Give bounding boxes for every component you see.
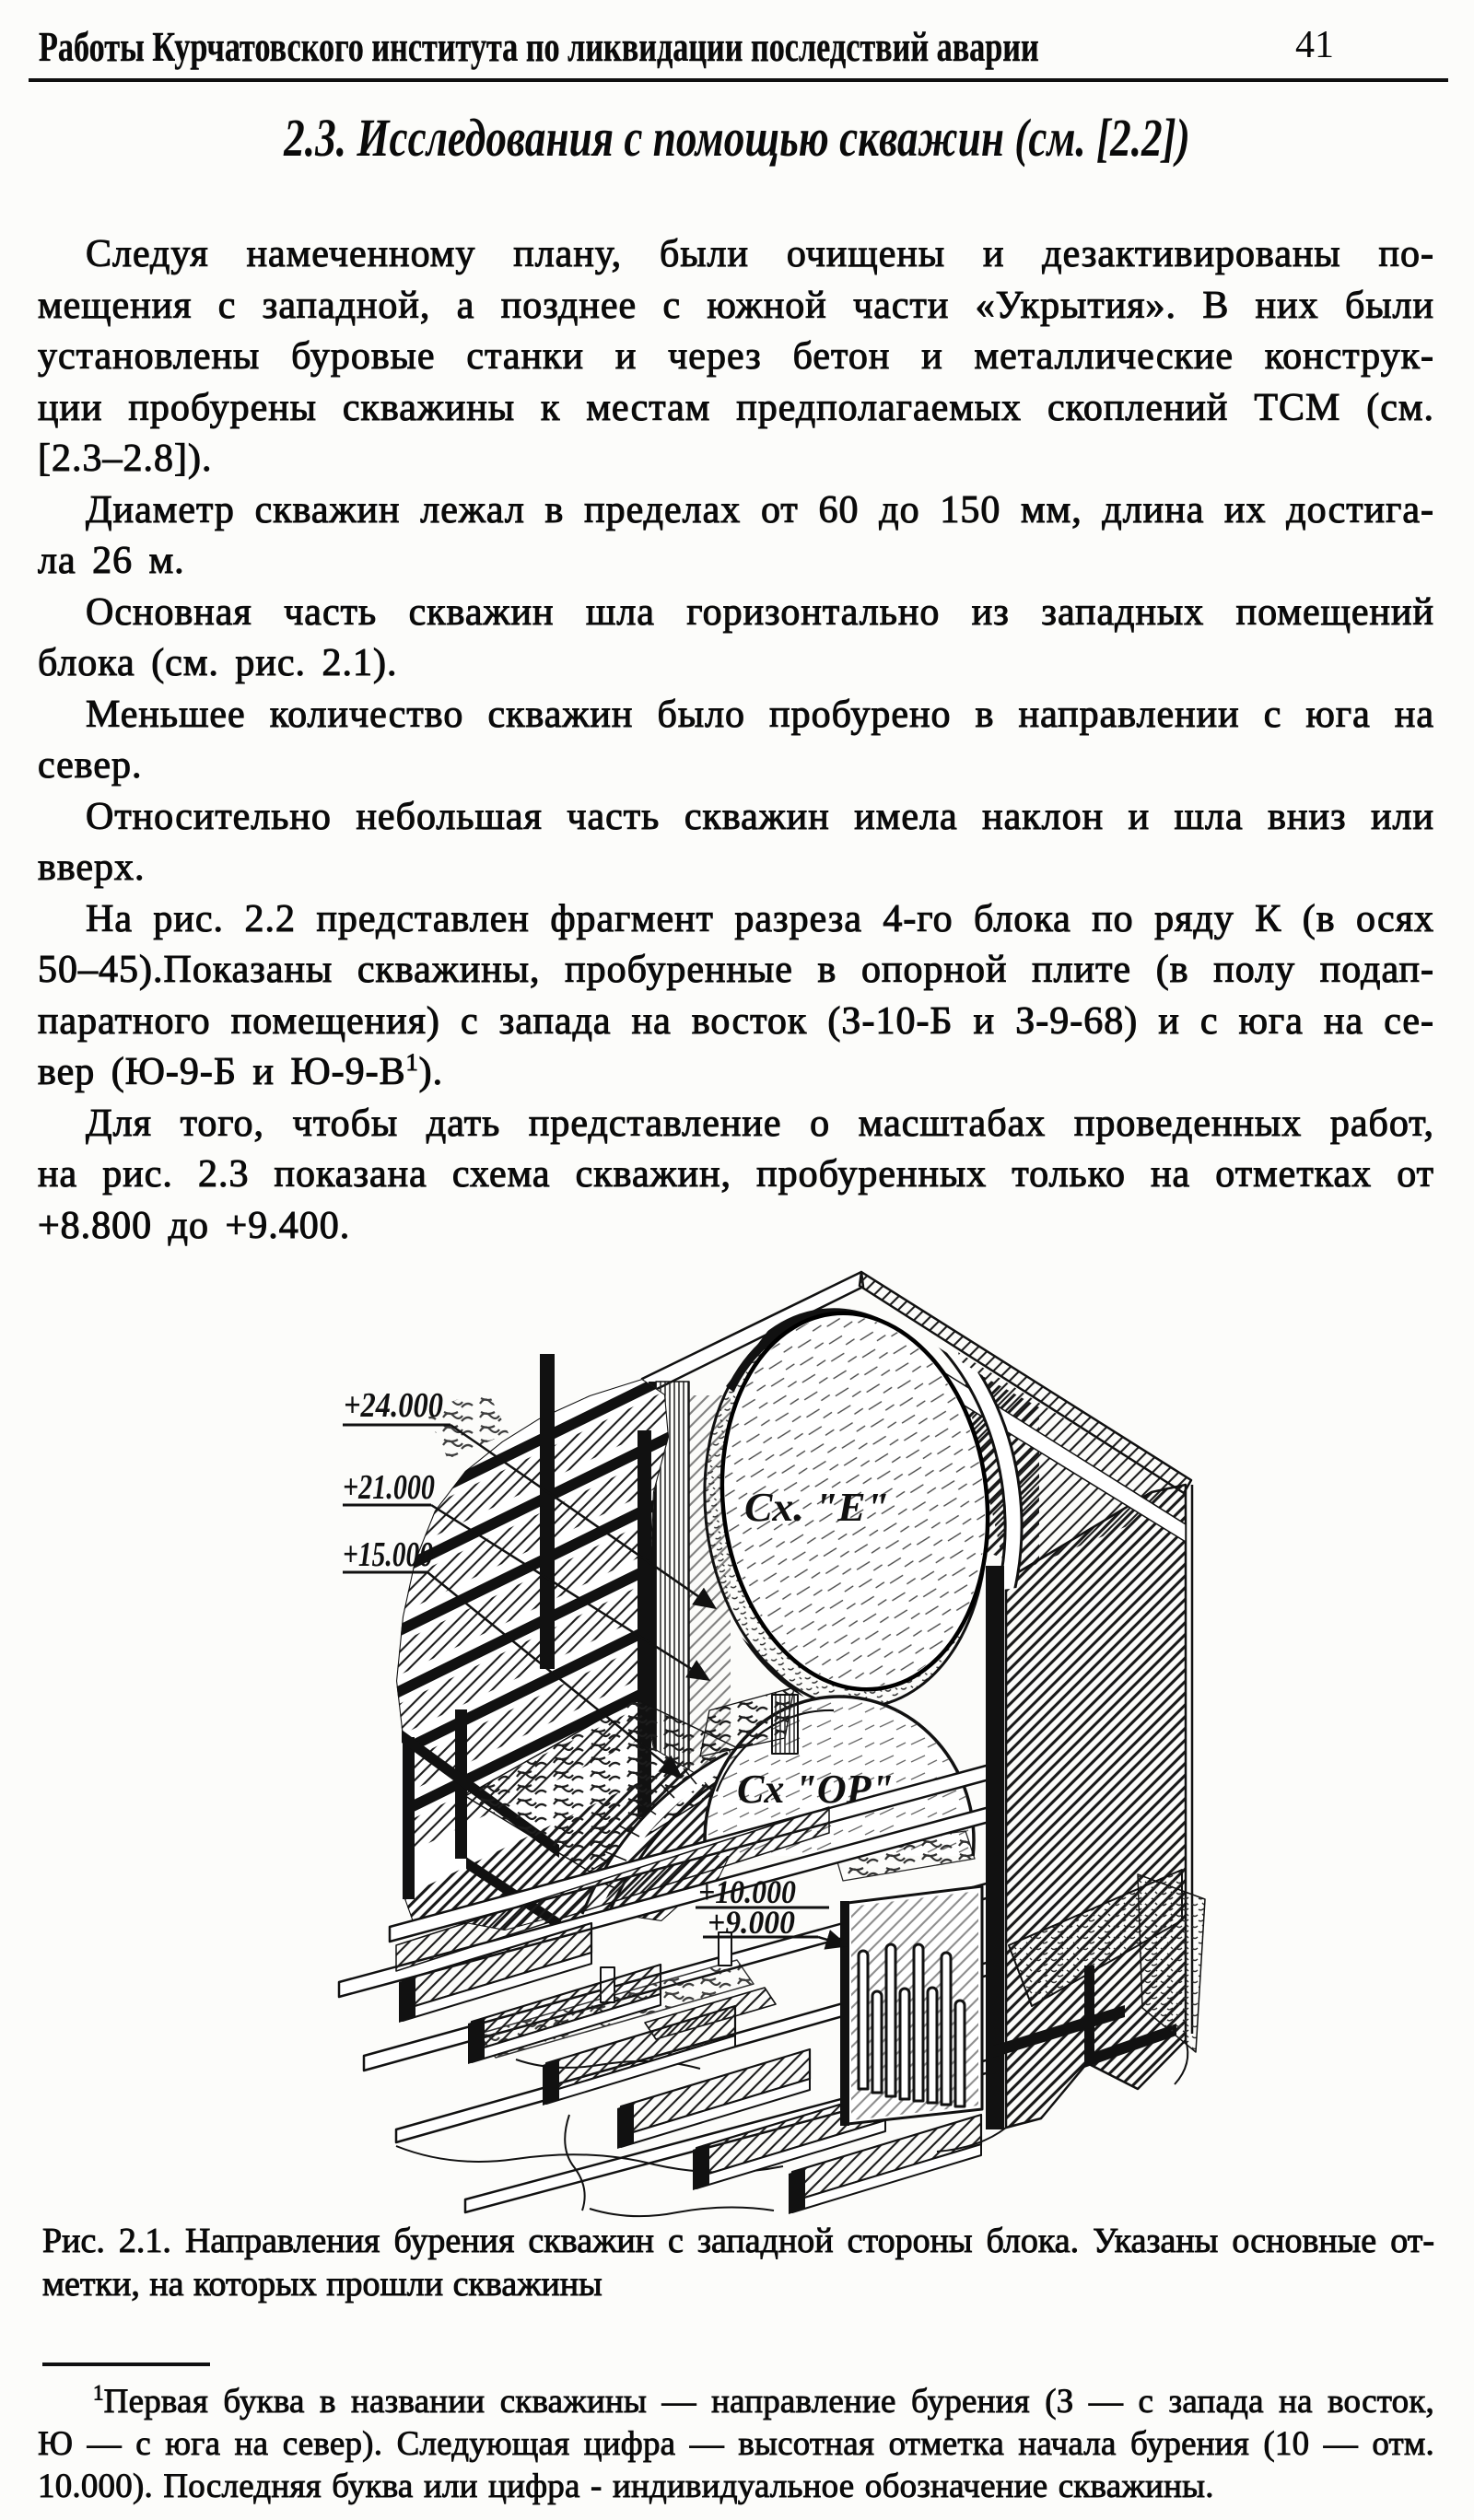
svg-text:+21.000: +21.000	[343, 1468, 435, 1507]
svg-text:+24.000: +24.000	[344, 1386, 443, 1425]
svg-text:+15.000: +15.000	[343, 1535, 433, 1574]
svg-text:Сх. "Е": Сх. "Е"	[744, 1485, 889, 1530]
svg-text:+9.000: +9.000	[708, 1904, 795, 1941]
